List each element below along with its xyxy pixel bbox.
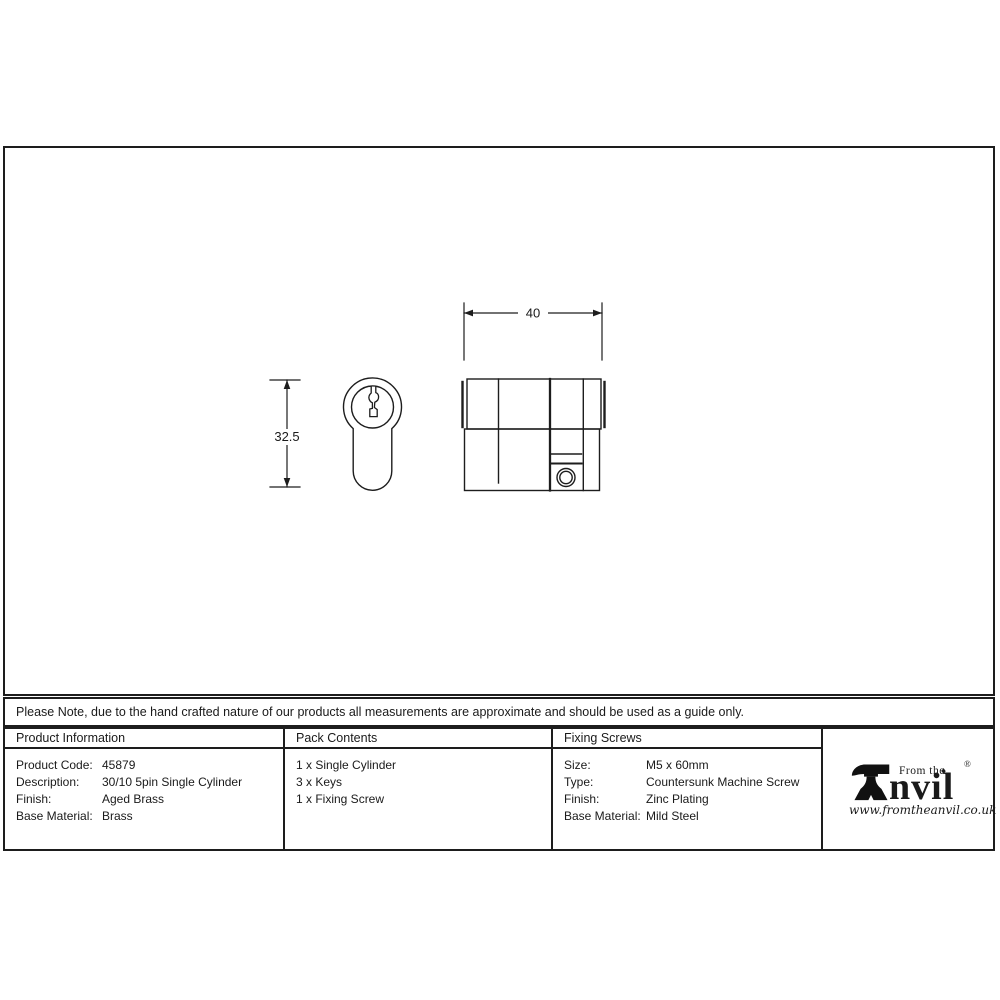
logo-website: www.fromtheanvil.co.uk xyxy=(849,803,996,817)
note-text: Please Note, due to the hand crafted nat… xyxy=(16,699,985,725)
list-item: 1 x Fixing Screw xyxy=(296,791,551,808)
cylinder-side-view xyxy=(463,379,605,491)
width-dim-label: 40 xyxy=(526,306,540,321)
table-row: Finish: Aged Brass xyxy=(16,791,283,808)
drawing-area: 32.5 40 xyxy=(3,146,995,696)
row-label: Size: xyxy=(564,757,646,774)
table-row: Base Material: Mild Steel xyxy=(564,808,821,825)
row-value: Brass xyxy=(102,808,133,825)
spec-table: Product Information Product Code: 45879 … xyxy=(3,727,995,851)
row-value: Mild Steel xyxy=(646,808,699,825)
product-information-header: Product Information xyxy=(5,729,283,749)
height-dim-label: 32.5 xyxy=(274,429,299,444)
width-dimension: 40 xyxy=(464,303,602,360)
height-dimension: 32.5 xyxy=(270,380,303,487)
technical-drawing-svg: 32.5 40 xyxy=(5,148,993,694)
registered-trademark-icon: ® xyxy=(964,759,971,769)
table-row: Product Code: 45879 xyxy=(16,757,283,774)
table-row: Finish: Zinc Plating xyxy=(564,791,821,808)
row-value: Countersunk Machine Screw xyxy=(646,774,799,791)
product-spec-sheet: 32.5 40 xyxy=(0,0,1000,1000)
anvil-icon xyxy=(851,760,891,802)
row-value: 30/10 5pin Single Cylinder xyxy=(102,774,242,791)
table-row: Description: 30/10 5pin Single Cylinder xyxy=(16,774,283,791)
row-value: Zinc Plating xyxy=(646,791,709,808)
brand-logo-cell: From the ♦ nvil ® www.fromtheanvil.co.uk xyxy=(823,729,993,849)
row-label: Finish: xyxy=(16,791,102,808)
table-row: Type: Countersunk Machine Screw xyxy=(564,774,821,791)
keyway xyxy=(369,387,379,417)
anvil-logo: From the ♦ nvil ® www.fromtheanvil.co.uk xyxy=(823,729,993,849)
row-label: Product Code: xyxy=(16,757,102,774)
list-item: 3 x Keys xyxy=(296,774,551,791)
pack-contents-column: Pack Contents 1 x Single Cylinder 3 x Ke… xyxy=(285,729,553,849)
fixing-screws-column: Fixing Screws Size: M5 x 60mm Type: Coun… xyxy=(553,729,823,849)
row-label: Description: xyxy=(16,774,102,791)
row-label: Base Material: xyxy=(16,808,102,825)
row-value: Aged Brass xyxy=(102,791,164,808)
row-value: 45879 xyxy=(102,757,135,774)
list-item: 1 x Single Cylinder xyxy=(296,757,551,774)
product-information-column: Product Information Product Code: 45879 … xyxy=(5,729,285,849)
table-row: Size: M5 x 60mm xyxy=(564,757,821,774)
row-label: Type: xyxy=(564,774,646,791)
table-row: Base Material: Brass xyxy=(16,808,283,825)
logo-wordmark: nvil xyxy=(889,772,954,802)
note-bar: Please Note, due to the hand crafted nat… xyxy=(3,697,995,727)
fixing-screws-header: Fixing Screws xyxy=(553,729,821,749)
cylinder-front-view xyxy=(343,378,401,490)
row-label: Base Material: xyxy=(564,808,646,825)
row-value: M5 x 60mm xyxy=(646,757,709,774)
pack-contents-header: Pack Contents xyxy=(285,729,551,749)
row-label: Finish: xyxy=(564,791,646,808)
